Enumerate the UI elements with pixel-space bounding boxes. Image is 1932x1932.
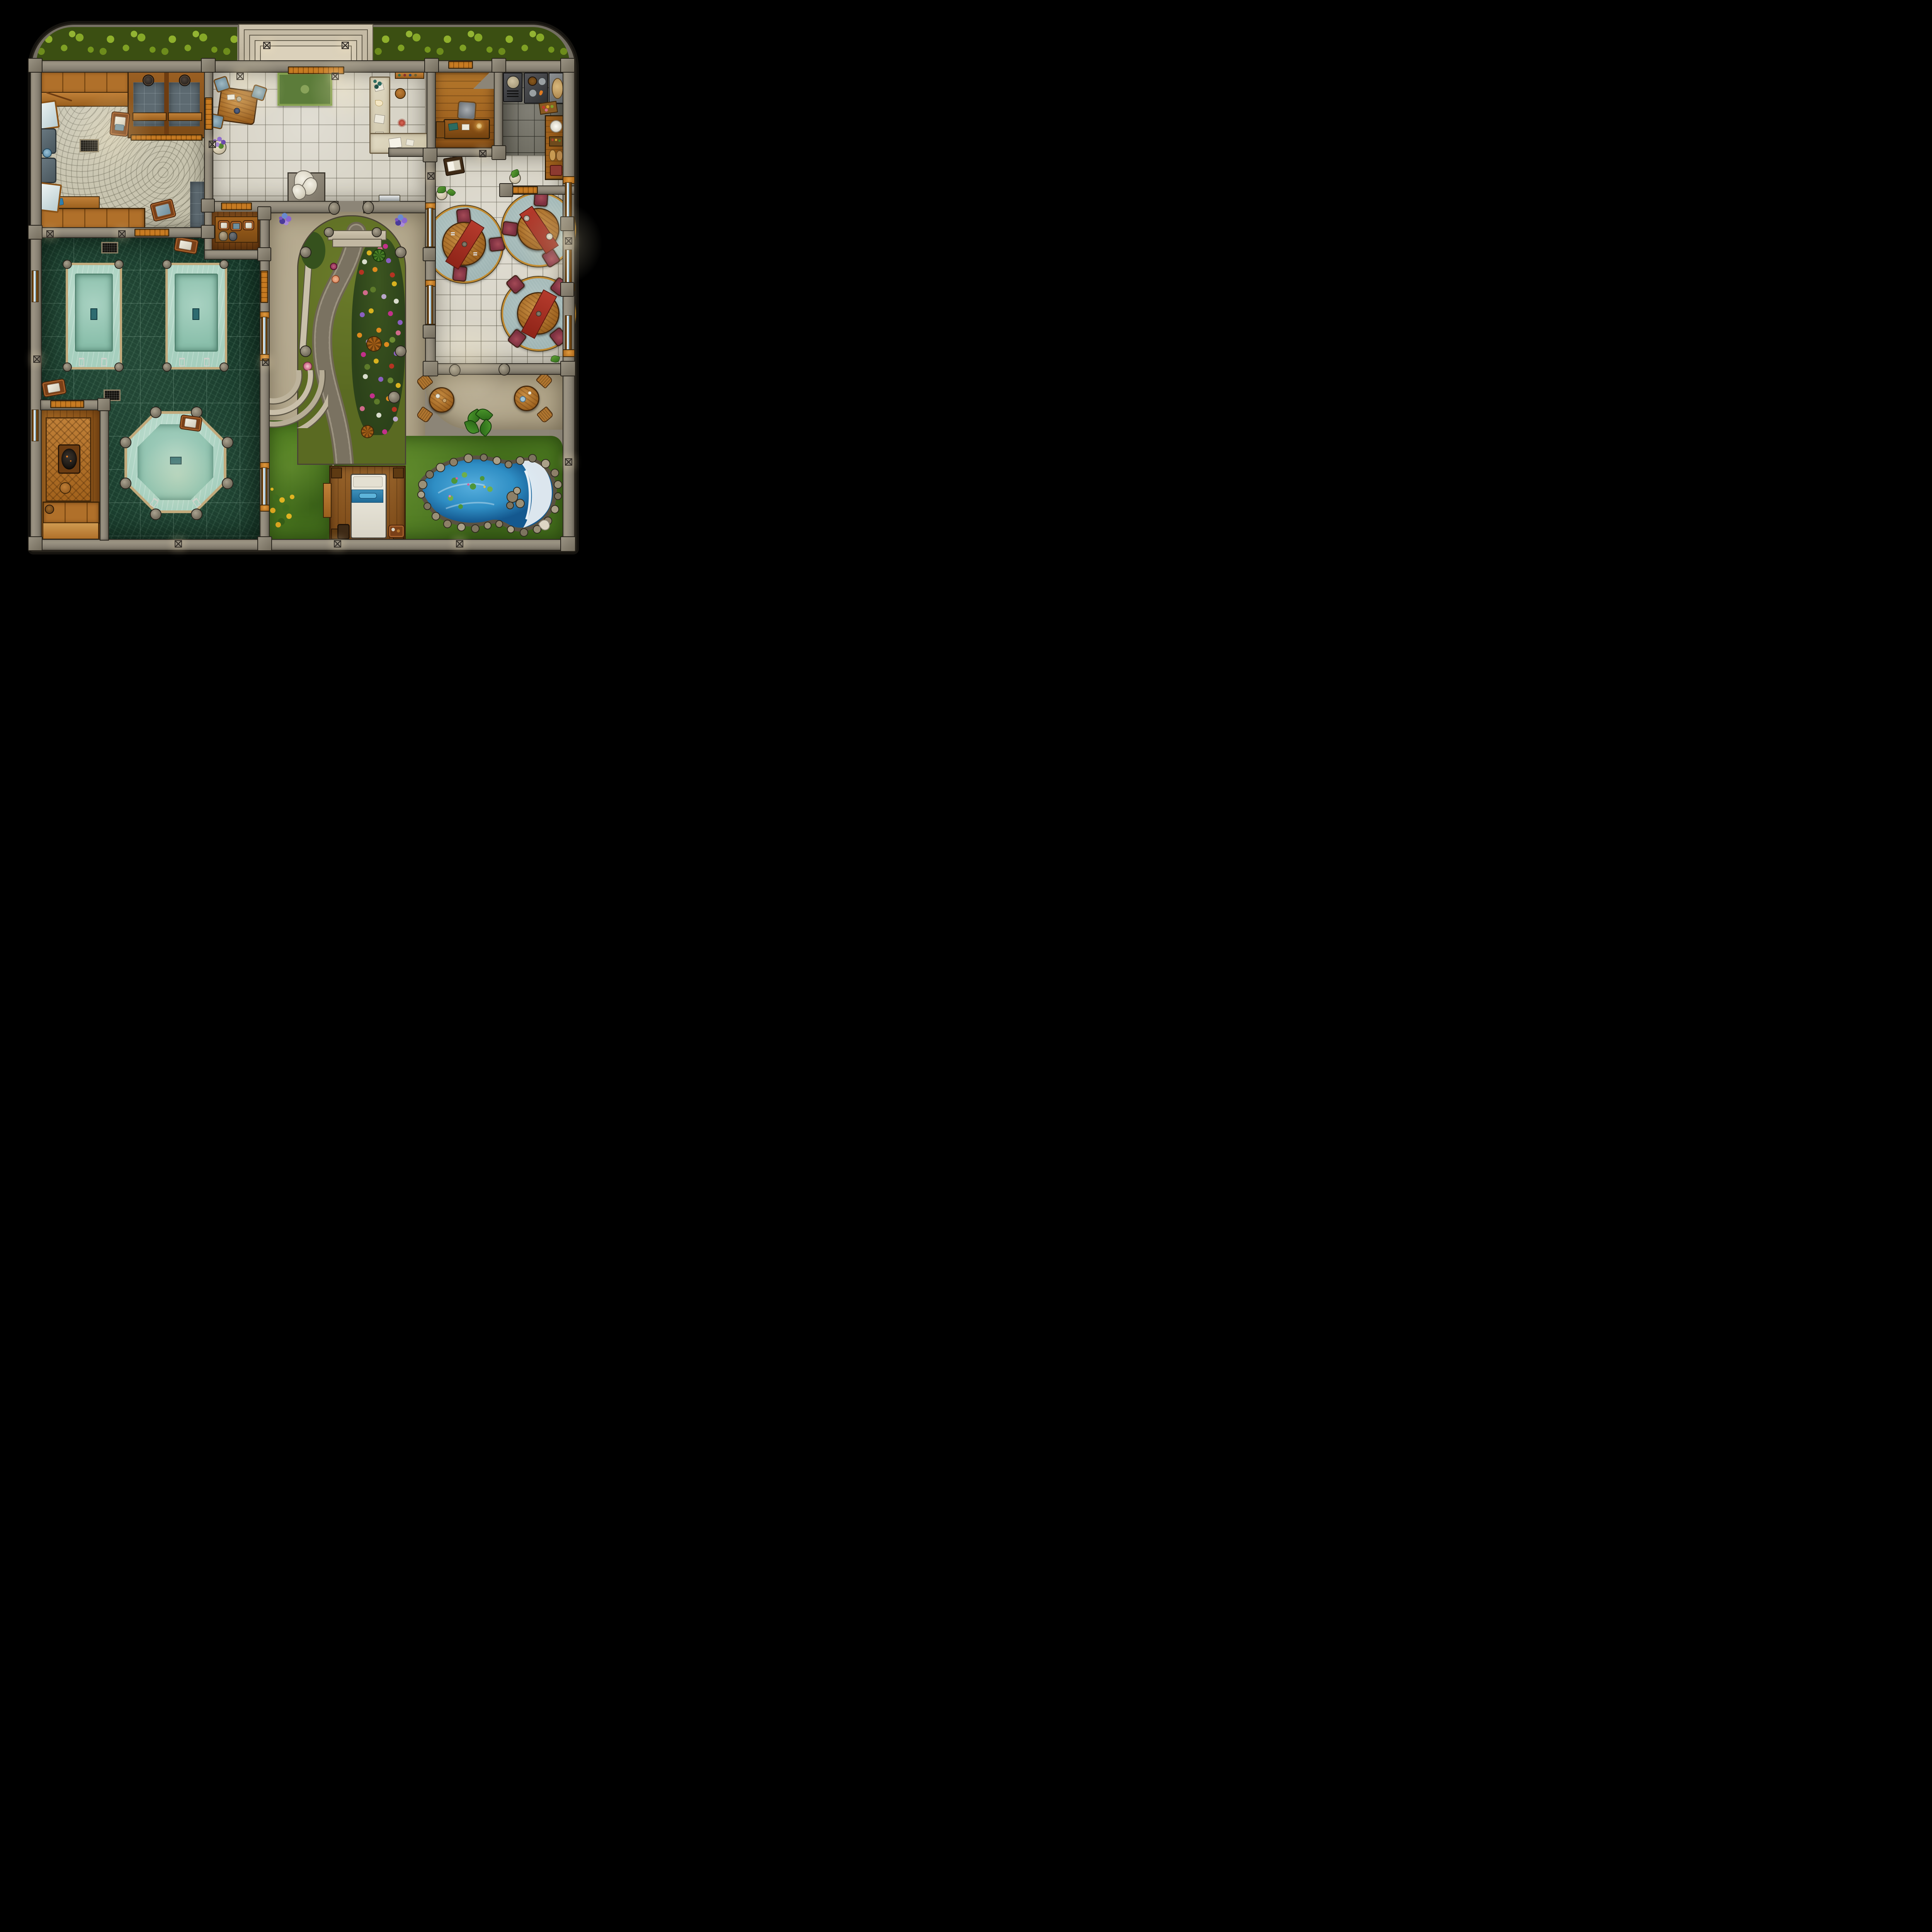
- statue-plinth: [287, 172, 325, 203]
- waterfall-pond: [411, 435, 563, 539]
- dining-table: [442, 222, 486, 266]
- wall-pillar: [362, 201, 374, 214]
- office-corner-cut: [472, 71, 494, 89]
- door-changing-hall: [205, 97, 213, 130]
- door-office: [448, 61, 473, 69]
- floor-drain: [80, 139, 99, 152]
- stall-barrel: [143, 75, 154, 86]
- wall-sauna-east: [100, 400, 109, 541]
- purple-planter: [279, 216, 282, 220]
- octagonal-pool: [124, 411, 226, 513]
- entrance-lantern-icon: [342, 42, 349, 49]
- stall-threshold: [131, 134, 202, 141]
- office-chair: [457, 100, 476, 120]
- pool-drain: [170, 457, 182, 464]
- entrance-rug: [277, 73, 332, 106]
- sauna-step: [43, 522, 99, 539]
- wall-lantern-icon: [427, 172, 435, 180]
- wall-office-kitchen: [494, 60, 503, 157]
- stall-barrel: [179, 75, 190, 86]
- book-stand: [443, 155, 465, 176]
- curved-steps: [268, 370, 328, 428]
- pool-ladder: [79, 358, 84, 366]
- fern-plant: [361, 425, 374, 438]
- window: [32, 410, 39, 441]
- massage-deck: [329, 466, 406, 541]
- rose-flower: [303, 362, 312, 371]
- kitchen-stove: [524, 73, 548, 104]
- office-desk: [444, 119, 490, 139]
- terrace-table: [429, 387, 454, 413]
- wall-lantern-icon: [565, 458, 572, 466]
- deck-tray: [388, 525, 405, 538]
- window: [565, 182, 572, 217]
- window: [32, 270, 39, 302]
- towel-tray: [179, 414, 203, 432]
- wall-lantern-icon: [175, 540, 182, 548]
- fern-plant: [372, 249, 386, 262]
- wall-lantern-icon: [209, 141, 216, 148]
- window: [427, 208, 433, 247]
- door-towel-store: [221, 202, 252, 210]
- wall-right: [563, 60, 575, 551]
- floor-drain: [101, 242, 118, 253]
- reception-stool: [395, 88, 406, 99]
- stepping-stone: [388, 391, 400, 403]
- sauna-stool: [60, 482, 71, 494]
- stall-door: [168, 112, 202, 121]
- wall-bottom: [30, 539, 575, 551]
- window: [565, 315, 572, 350]
- wall-lantern-icon: [46, 230, 54, 238]
- terrace-plant: [474, 417, 478, 420]
- pool-drain: [192, 308, 199, 320]
- wall-lantern-icon: [456, 540, 463, 548]
- sauna-brazier: [58, 444, 80, 474]
- bloom-flower: [330, 263, 337, 270]
- bloom-flower: [332, 275, 340, 283]
- wall-lantern-icon: [236, 73, 244, 80]
- wall-pillar: [328, 202, 340, 215]
- battle-map: [0, 0, 606, 572]
- sack: [219, 231, 228, 241]
- step-pillar: [324, 227, 334, 237]
- step-pillar: [372, 227, 382, 237]
- silver-platter: [379, 195, 400, 202]
- wall-lantern-icon: [479, 150, 486, 157]
- arch-pillar: [300, 247, 311, 258]
- door-sauna: [50, 400, 84, 408]
- sack: [229, 232, 237, 241]
- water-bowl: [43, 148, 52, 158]
- stall-door: [133, 112, 167, 121]
- fruit-crate: [539, 101, 558, 115]
- massage-bed: [350, 474, 387, 539]
- fern-plant: [366, 336, 382, 352]
- purple-planter: [395, 218, 398, 221]
- laundry-basket: [109, 111, 130, 137]
- wall-left: [30, 60, 42, 551]
- pool-ladder: [204, 358, 209, 366]
- wall-lantern-icon: [332, 73, 339, 80]
- spice-shelf: [395, 72, 424, 79]
- window: [261, 468, 267, 505]
- wall-lantern-icon: [262, 359, 269, 366]
- changing-stalls: [128, 71, 206, 138]
- roof-hedge-right: [373, 27, 570, 64]
- wall-lantern-icon: [33, 355, 41, 363]
- sunflower-patch: [270, 488, 274, 491]
- entrance-lantern-icon: [263, 42, 270, 49]
- towel-shelf: [215, 216, 258, 243]
- deck-basket: [337, 524, 350, 539]
- dining-chair: [502, 221, 519, 236]
- window: [565, 250, 572, 284]
- pool-drain: [90, 308, 97, 320]
- terrace-table: [514, 386, 539, 411]
- flowerbed-foliage: [352, 238, 405, 435]
- dining-table: [517, 208, 560, 250]
- locker-cabinets: [40, 71, 130, 94]
- arch-pillar: [395, 247, 406, 258]
- bathing-pool-left: [66, 263, 122, 369]
- pool-ladder: [179, 358, 185, 366]
- office-cabinet: [436, 121, 445, 138]
- wall-lantern-icon: [118, 230, 126, 238]
- dining-chair: [452, 265, 468, 282]
- door-pool-hall: [134, 229, 169, 236]
- wall-lantern-icon: [334, 540, 341, 548]
- pool-ladder: [101, 358, 107, 366]
- teal-dishes: [373, 80, 377, 83]
- door-courtyard-pool: [260, 270, 268, 303]
- wall-office-west: [427, 60, 436, 157]
- wall-pillar: [498, 363, 510, 376]
- sauna-bucket: [45, 505, 54, 514]
- garden-steps: [332, 239, 382, 247]
- bathing-pool-right: [165, 263, 227, 369]
- wall-lantern-icon: [565, 237, 572, 245]
- deck-bench: [323, 483, 332, 518]
- arch-pillar: [300, 345, 311, 357]
- red-starburst: [399, 120, 405, 126]
- window: [427, 285, 433, 325]
- kitchen-grill: [503, 73, 522, 102]
- dining-table: [517, 292, 560, 335]
- plant-leaves: [437, 186, 446, 193]
- folded-blue-towel: [352, 490, 383, 503]
- arch-pillar: [395, 345, 406, 357]
- window: [261, 317, 267, 355]
- wall-pillar: [449, 364, 461, 376]
